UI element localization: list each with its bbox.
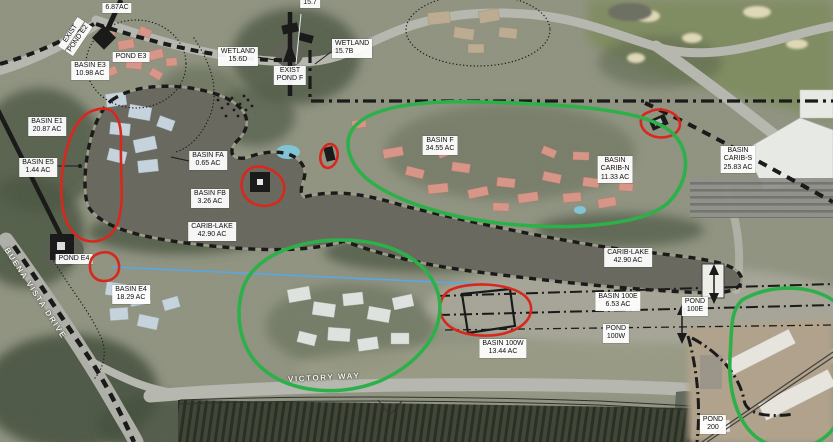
label-pond-e4: POND E4 xyxy=(56,254,93,264)
label-pond-e3: POND E3 xyxy=(113,52,150,62)
label-basin-100w: BASIN 100W13.44 AC xyxy=(479,339,526,358)
label-pond-100w: POND100W xyxy=(603,324,629,343)
label-basin-e1: BASIN E120.87 AC xyxy=(28,117,66,136)
label-basin-e5: BASIN E51.44 AC xyxy=(19,158,57,177)
label-basin-e3: BASIN E310.98 AC xyxy=(71,61,109,80)
label-pond-687ac: 6.87AC xyxy=(102,3,131,13)
label-wetland-157: 15.7 xyxy=(300,0,320,8)
label-wetland-157b: WETLAND15.7B xyxy=(332,39,372,58)
label-basin-carib-n: BASINCARIB-N11.33 AC xyxy=(598,156,633,183)
label-victory-way: VICTORY WAY xyxy=(288,371,361,384)
label-exist-pond-e2: EXISTPOND E2 xyxy=(58,17,93,56)
label-basin-e4: BASIN E418.29 AC xyxy=(112,285,150,304)
label-pond-100e: POND100E xyxy=(682,297,708,316)
label-basin-f: BASIN F34.55 AC xyxy=(423,136,458,155)
label-basin-fb: BASIN FB3.26 AC xyxy=(191,189,229,208)
drainage-basin-map[interactable]: EXISTPOND E2 6.87AC POND E3 BASIN E310.9… xyxy=(0,0,833,442)
label-basin-100e: BASIN 100E6.53 AC xyxy=(595,292,640,311)
label-wetland-156d: WETLAND15.6D xyxy=(218,47,258,66)
label-basin-carib-s: BASINCARIB-S25.83 AC xyxy=(721,146,756,173)
map-labels: EXISTPOND E2 6.87AC POND E3 BASIN E310.9… xyxy=(0,0,833,442)
label-pond-200: POND200 xyxy=(700,415,726,434)
label-basin-fa: BASIN FA0.65 AC xyxy=(189,151,227,170)
label-carib-lake-west: CARIB-LAKE42.90 AC xyxy=(188,222,236,241)
label-exist-pond-f: EXISTPOND F xyxy=(274,66,306,85)
label-carib-lake-east: CARIB-LAKE42.90 AC xyxy=(604,248,652,267)
